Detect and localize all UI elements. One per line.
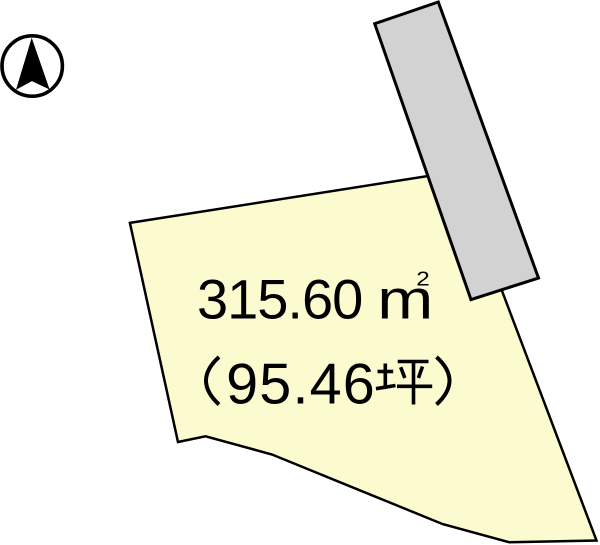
svg-text:2: 2 [416,268,430,291]
svg-text:315.60: 315.60 [197,267,362,330]
svg-text:95.46: 95.46 [226,352,376,416]
